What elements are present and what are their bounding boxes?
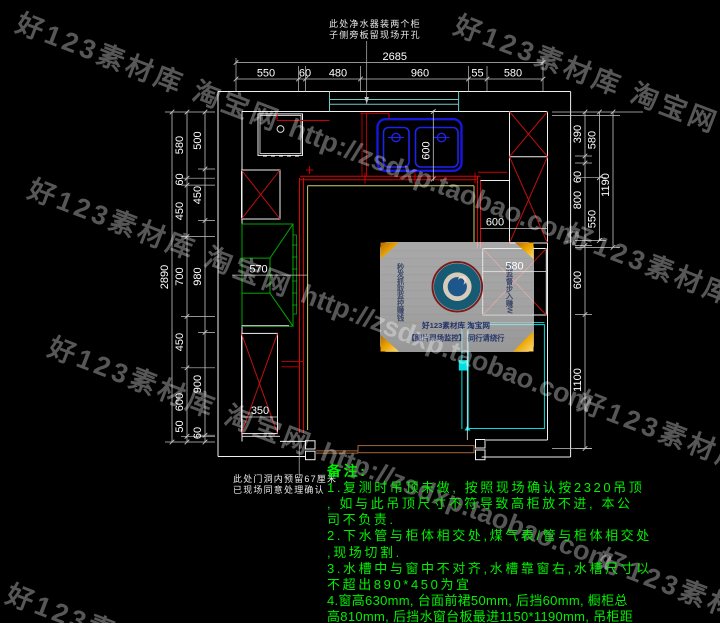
svg-text:580: 580 <box>505 261 523 273</box>
